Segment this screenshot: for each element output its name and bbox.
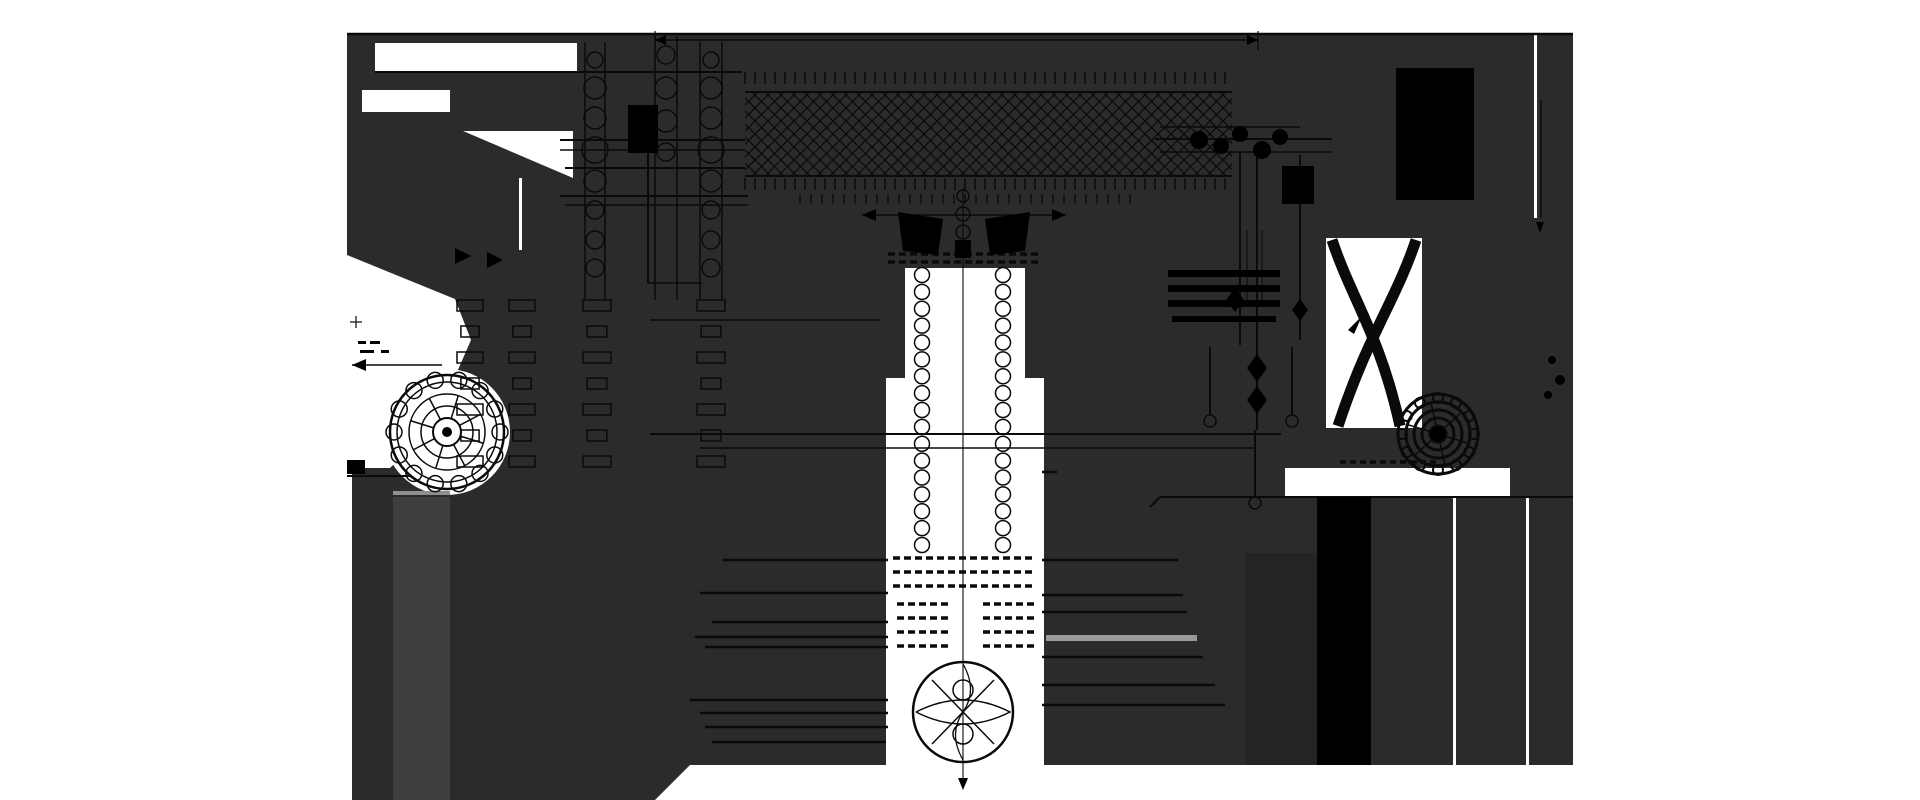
cutout [1285, 468, 1510, 497]
gray-column [393, 497, 450, 800]
cutout [886, 378, 1044, 800]
circle-solid [1253, 141, 1271, 159]
circle-solid [1190, 131, 1208, 149]
solid-rect [370, 341, 380, 344]
circle-solid [1213, 138, 1229, 154]
solid-rect [347, 460, 365, 474]
solid-rect [360, 350, 374, 353]
solid-rect [1317, 497, 1371, 765]
cutout [1526, 497, 1529, 765]
solid-rect [1168, 300, 1280, 307]
solid-rect [1396, 68, 1474, 200]
circle-solid [1272, 129, 1288, 145]
engineering-drawing [0, 0, 1920, 800]
solid-rect [1282, 166, 1314, 204]
rosette-center [442, 427, 452, 437]
circle-solid [1555, 375, 1565, 385]
solid-rect [358, 341, 366, 344]
technical-drawing-page [0, 0, 1920, 800]
pedestal-slab [1245, 553, 1317, 765]
solid-rect [955, 240, 971, 258]
cutout [375, 43, 577, 72]
drawing-canvas [0, 0, 1920, 800]
circle-solid [1548, 356, 1556, 364]
solid-rect [381, 350, 389, 353]
gray-column-top-line [393, 491, 450, 495]
cutout [1534, 34, 1537, 218]
circle-solid [1232, 126, 1248, 142]
solid-rect [1172, 316, 1276, 322]
solid-poly [898, 212, 943, 255]
cutout [362, 90, 450, 112]
cutout [1453, 497, 1456, 765]
solid-rect [1168, 270, 1280, 277]
solid-poly [985, 212, 1030, 255]
solid-rect [1168, 285, 1280, 292]
rosette-center [1430, 426, 1446, 442]
circle-solid [1544, 391, 1552, 399]
solid-rect [628, 105, 658, 153]
cutout [519, 178, 522, 250]
